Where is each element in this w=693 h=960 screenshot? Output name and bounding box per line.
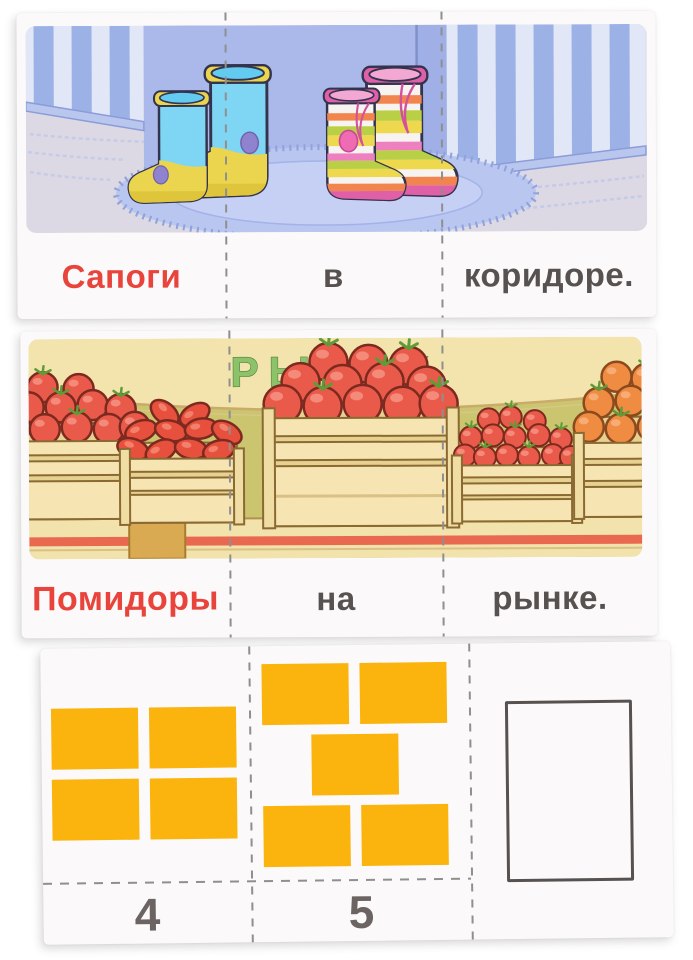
market-illustration: РЫНОК: [28, 337, 642, 560]
number-label-five: 5: [251, 884, 472, 941]
counting-tile: [149, 706, 237, 768]
counting-tile: [51, 708, 139, 770]
tile-row: [263, 804, 449, 867]
word-preposition: в: [225, 257, 441, 296]
counting-tile: [311, 733, 399, 795]
number-label-four: 4: [43, 886, 252, 943]
tile-row: [51, 706, 237, 769]
flashcard-boots: Сапоги в коридоре.: [16, 11, 656, 319]
word-subject: Сапоги: [17, 257, 225, 296]
tile-group-four: [51, 706, 238, 840]
counting-tile: [150, 777, 238, 839]
boots-hallway-illustration: [26, 24, 648, 233]
flashcard-counting: 4 5: [40, 641, 674, 945]
sentence-row: Сапоги в коридоре.: [17, 233, 656, 319]
market-scene: РЫНОК: [28, 337, 642, 560]
word-subject: Помидоры: [21, 579, 229, 619]
word-object: коридоре.: [441, 256, 656, 295]
flashcard-market: РЫНОК: [20, 329, 657, 639]
tile-row: [311, 733, 399, 795]
counting-tile: [359, 662, 447, 724]
counting-tile: [361, 804, 449, 866]
boots-hallway-scene: [26, 24, 648, 233]
counting-tile: [261, 663, 349, 725]
empty-answer-box: [505, 700, 634, 883]
tile-row: [52, 777, 238, 840]
word-preposition: на: [229, 579, 442, 618]
tile-group-five: [261, 662, 448, 867]
numbers-row: 4 5: [43, 879, 674, 945]
sentence-row: Помидоры на рынке.: [21, 559, 657, 639]
tile-row: [261, 662, 447, 725]
counting-tile: [52, 779, 140, 841]
counting-tile: [263, 805, 351, 867]
word-object: рынке.: [442, 578, 657, 617]
